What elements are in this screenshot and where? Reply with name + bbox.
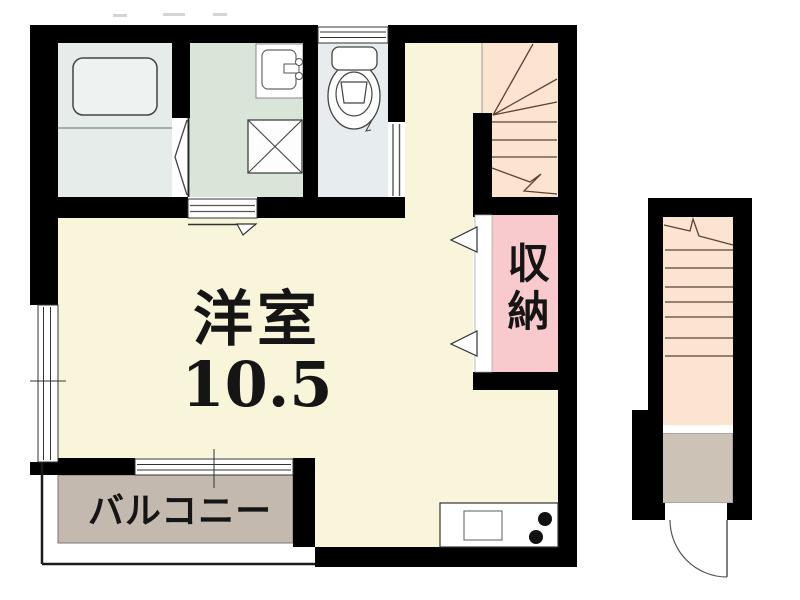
balcony-label: バルコニー	[60, 493, 300, 529]
wall-under-wetrooms-left	[30, 197, 188, 218]
floor-plan: 洋室 10.5 収納 バルコニー	[0, 0, 800, 600]
outdoor-stairs-floor	[663, 217, 733, 425]
wall-top-right	[388, 25, 577, 43]
wall-left-upper	[30, 25, 58, 305]
outdoor-wall-left	[648, 198, 663, 410]
faucet	[284, 64, 299, 73]
bathtub	[73, 58, 157, 115]
storage-label: 収納	[504, 241, 546, 337]
main-room-size: 10.5	[137, 354, 377, 416]
toilet-window	[318, 27, 388, 43]
wall-under-wetrooms-right	[257, 197, 405, 218]
wall-toilet-hall	[388, 27, 405, 122]
wall-top-left	[30, 25, 318, 43]
outdoor-wall-bottom-left	[632, 503, 665, 520]
wall-below-storage	[473, 372, 558, 390]
faucet-knob-bottom	[296, 73, 303, 80]
toilet-fixture	[328, 47, 380, 131]
outdoor-wall-bottom-right	[727, 503, 752, 520]
stove-burner-2	[529, 530, 543, 544]
entry-door	[670, 520, 727, 577]
wall-right	[558, 25, 577, 567]
kitchen-sink	[464, 511, 502, 540]
cropped-edge-marks	[113, 13, 227, 17]
main-room-label: 洋室	[137, 290, 377, 350]
wall-bath-washroom	[172, 43, 190, 118]
entry-door-swing-arc	[670, 520, 727, 577]
hallway-floor	[405, 43, 482, 218]
toilet-lid-detail	[341, 82, 367, 103]
outdoor-landing-gap	[663, 425, 733, 433]
toilet-tank	[332, 47, 377, 70]
wall-above-storage	[473, 197, 558, 215]
faucet-knob-top	[296, 59, 303, 66]
wall-bottom	[315, 547, 577, 567]
wall-washroom-toilet	[303, 27, 318, 197]
stove-burner-1	[538, 512, 552, 526]
toilet-sliding-door	[388, 122, 405, 197]
kitchen	[440, 503, 558, 547]
bathroom-folding-door	[172, 118, 190, 197]
entry-door-opening	[665, 503, 727, 520]
outdoor-wall-right	[733, 198, 752, 520]
